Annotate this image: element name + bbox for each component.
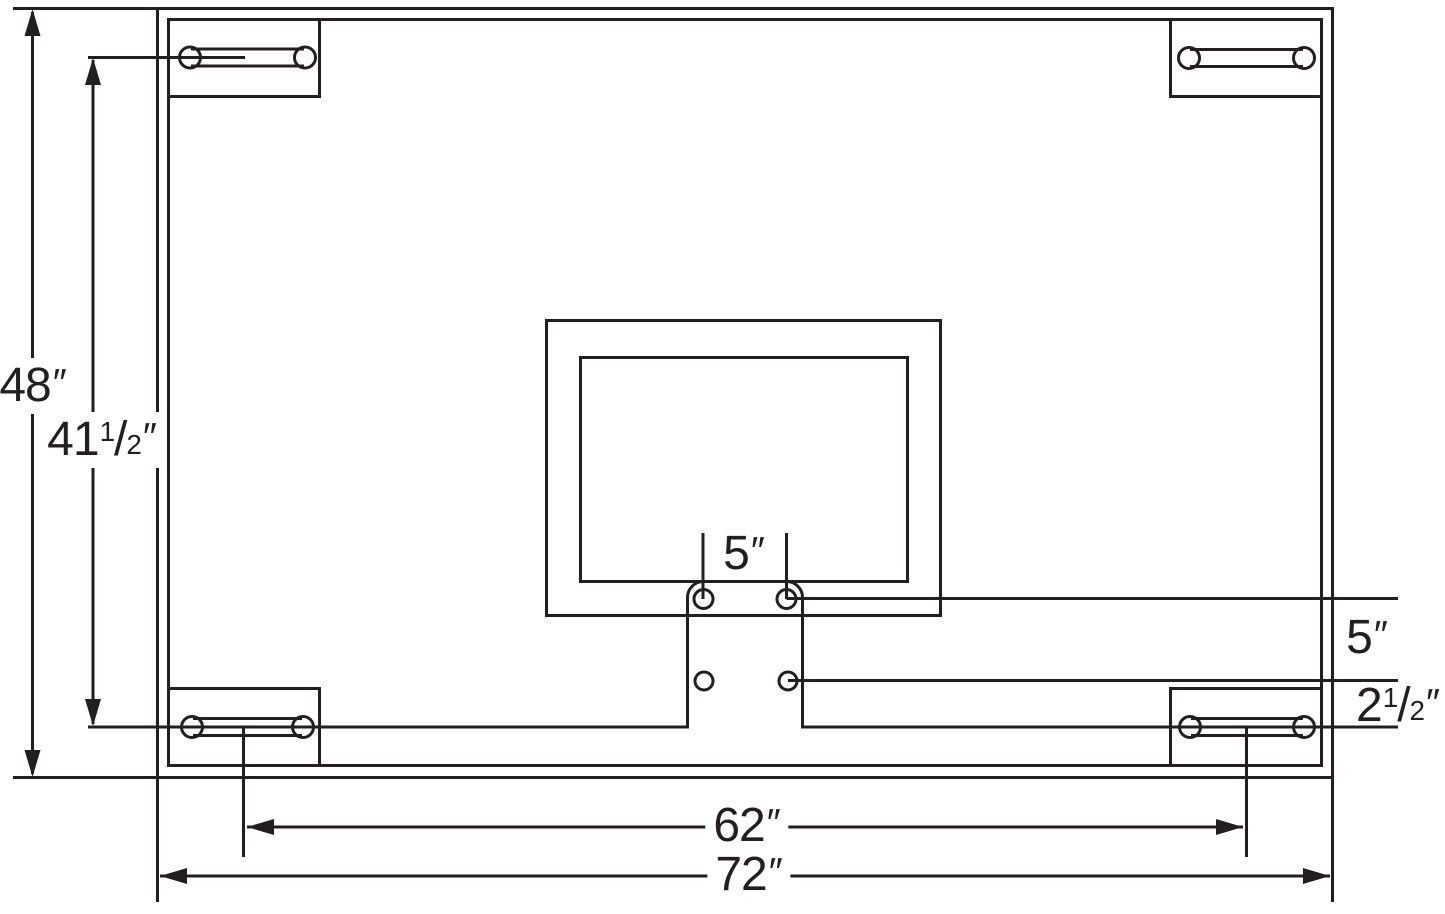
mounting-plate-outline: [88, 582, 1398, 728]
dimension-41-5: [85, 58, 245, 727]
board-width-label: 72″: [707, 847, 790, 903]
slot-span-label: 62″: [705, 798, 788, 854]
slot-top-right: [1179, 48, 1315, 69]
mounting-slots: [180, 47, 1315, 738]
hole-to-slot-label: 21/2″: [1356, 682, 1440, 730]
hole-reference-lines: [703, 533, 1398, 681]
hole-lower-left: [695, 672, 713, 690]
corner-brackets: [169, 20, 1322, 766]
diagram-linework: [0, 0, 1445, 914]
bracket-top-right: [1171, 20, 1322, 97]
mounting-holes: [694, 590, 797, 691]
backboard-outline: [158, 9, 1333, 778]
backboard-dimension-diagram: 48″ 411/2″ 5″ 5″ 21/2″ 62″ 72″: [0, 0, 1445, 914]
hole-gap-vertical-label: 5″: [1346, 614, 1388, 662]
board-height-label: 48″: [0, 358, 75, 414]
hole-gap-horizontal-label: 5″: [723, 530, 765, 578]
slot-height-label: 411/2″: [39, 412, 165, 468]
